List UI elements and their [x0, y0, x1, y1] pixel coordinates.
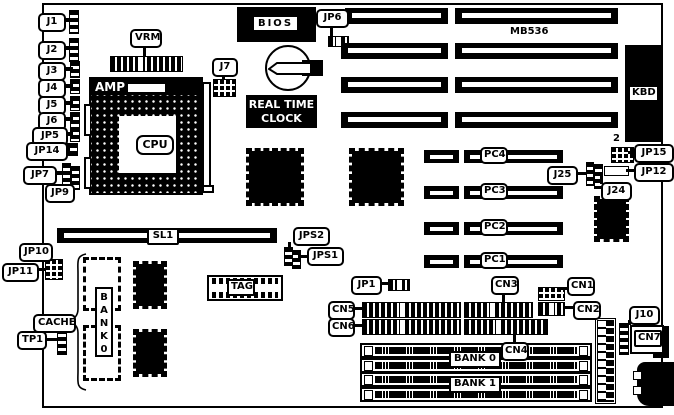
label-j3: J3	[38, 62, 66, 81]
label-cache: CACHE	[33, 314, 76, 333]
label-jp7: JP7	[23, 166, 57, 185]
label-bank0-chip: BANK0	[95, 287, 113, 357]
j2-header	[69, 38, 79, 62]
pci-slot-segment	[464, 150, 563, 163]
label-bank0: BANK 0	[449, 351, 501, 368]
isa-slot-segment	[455, 112, 618, 128]
cn6-connector	[362, 319, 461, 335]
pointer-line	[288, 242, 291, 248]
label-j25: J25	[547, 166, 578, 185]
label-jp1: JP1	[351, 276, 382, 295]
pin2-text: 2	[613, 133, 620, 144]
cpu-lever-foot	[202, 185, 214, 193]
isa-slot-segment	[341, 112, 448, 128]
label-j24: J24	[601, 182, 632, 201]
pci-slot-segment	[424, 255, 459, 268]
vrm-header	[110, 56, 183, 72]
din-notch	[633, 386, 642, 395]
label-j10: J10	[629, 306, 660, 325]
amp-logo-box	[128, 84, 165, 92]
label-cn2: CN2	[573, 301, 601, 320]
label-sl1: SL1	[147, 228, 179, 245]
rtc-line1: REAL TIME	[246, 98, 317, 112]
label-j7: J7	[212, 58, 238, 77]
board-model-text: MB536	[510, 26, 548, 37]
isa-slot-segment	[455, 43, 618, 59]
qfp-chip	[246, 148, 304, 206]
label-kbd: KBD	[628, 85, 659, 102]
label-pc3: PC3	[480, 183, 508, 200]
label-pc2: PC2	[480, 219, 508, 236]
label-jp15: JP15	[634, 144, 674, 163]
label-tag: TAG	[227, 279, 255, 296]
label-jp12: JP12	[634, 163, 674, 182]
label-jp11: JP11	[2, 263, 39, 282]
label-pc1: PC1	[480, 252, 508, 269]
cn4-connector	[464, 319, 548, 335]
label-jp10: JP10	[19, 243, 53, 262]
jps1-jumper	[292, 250, 301, 269]
label-vrm: VRM	[130, 29, 162, 48]
cache-chip-qfp	[133, 261, 167, 309]
j24-chip	[594, 196, 629, 242]
power-connector	[595, 318, 616, 404]
label-bank1: BANK 1	[449, 376, 501, 393]
pci-slot-segment	[464, 255, 563, 268]
cn2-connector	[538, 302, 565, 316]
j7-jumper	[213, 79, 236, 97]
label-jp14: JP14	[26, 142, 68, 161]
din-connector	[637, 362, 674, 406]
power-pins-col	[606, 320, 614, 402]
j1-header	[69, 10, 79, 34]
label-j1: J1	[38, 13, 66, 32]
isa-slot-segment	[345, 8, 448, 24]
label-cn3: CN3	[491, 276, 519, 295]
tp1-header	[57, 329, 67, 355]
motherboard-diagram: J1 J2 J3 J4 J5 J6 JP5 JP14 JP7 JP9 VRM A…	[0, 0, 674, 415]
label-jp9: JP9	[45, 184, 75, 203]
rtc-chip: REAL TIME CLOCK	[246, 95, 317, 128]
label-cn5: CN5	[328, 301, 355, 320]
label-tp1: TP1	[17, 331, 47, 350]
label-cn1: CN1	[567, 277, 595, 296]
cn3-connector	[464, 302, 533, 318]
cn5-connector	[362, 302, 461, 318]
jp15-jumper	[611, 147, 634, 163]
qfp-chip	[349, 148, 404, 206]
label-cn7: CN7	[634, 330, 662, 347]
label-j2: J2	[38, 41, 66, 60]
label-jps2: JPS2	[293, 227, 330, 246]
cache-chip-qfp	[133, 329, 167, 377]
din-notch	[633, 371, 642, 380]
battery-key-icon	[268, 61, 312, 76]
label-jp6: JP6	[316, 9, 349, 28]
label-bios: BIOS	[252, 15, 299, 32]
isa-slot-segment	[455, 8, 618, 24]
isa-slot-segment	[341, 77, 448, 93]
jp1-jumper	[388, 279, 410, 291]
label-cn4: CN4	[501, 342, 529, 361]
j10-header	[619, 323, 629, 355]
jp10-jp11-jumper	[45, 259, 63, 280]
label-pc4: PC4	[480, 147, 508, 164]
cpu-lever	[202, 82, 211, 188]
rtc-line2: CLOCK	[246, 112, 317, 126]
label-cpu: CPU	[136, 135, 174, 155]
isa-slot-segment	[341, 43, 448, 59]
j25-header-a	[586, 162, 594, 186]
isa-slot-segment	[455, 77, 618, 93]
pci-slot-segment	[424, 222, 459, 235]
pci-slot-segment	[424, 186, 459, 199]
label-jps1: JPS1	[307, 247, 344, 266]
label-amp: AMP	[95, 81, 125, 94]
pci-slot-segment	[424, 150, 459, 163]
label-j4: J4	[38, 79, 66, 98]
pci-slot-segment	[464, 222, 563, 235]
pci-slot-segment	[464, 186, 563, 199]
label-cn6: CN6	[328, 318, 355, 337]
